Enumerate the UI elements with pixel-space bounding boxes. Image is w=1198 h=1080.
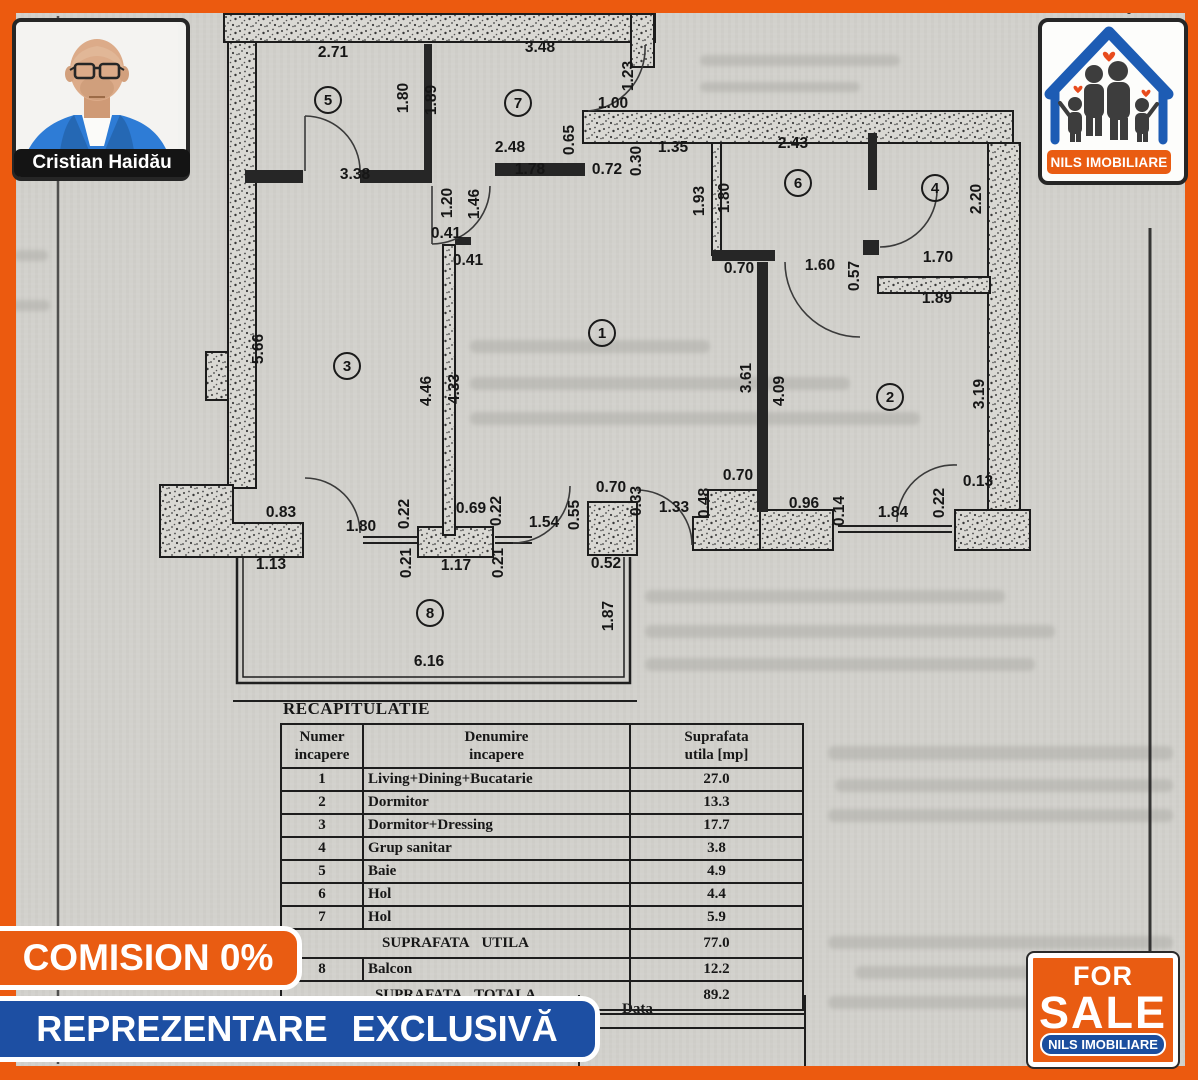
table-row: 4Grup sanitar3.8 xyxy=(281,837,803,860)
recap-header-cell: Suprafatautila [mp] xyxy=(630,724,803,768)
recap-header-cell: Denumireincapere xyxy=(363,724,630,768)
dimension-label: 0.41 xyxy=(431,225,462,242)
dimension-label: 1.84 xyxy=(878,504,909,521)
dimension-label: 3.61 xyxy=(738,363,755,394)
table-row: 2Dormitor13.3 xyxy=(281,791,803,814)
dimension-label: 0.14 xyxy=(831,496,848,527)
dimension-label: 0.72 xyxy=(592,161,622,178)
room-number: 4 xyxy=(931,180,940,197)
commission-banner-text: COMISION 0% xyxy=(23,937,274,979)
dimension-label: 1.60 xyxy=(805,257,835,274)
dimension-label: 1.87 xyxy=(600,601,617,631)
dimension-label: 0.70 xyxy=(724,260,754,277)
recap-header-cell: Numerincapere xyxy=(281,724,363,768)
recap-header-row: NumerincapereDenumireincapereSuprafataut… xyxy=(281,724,803,768)
room-number: 5 xyxy=(324,92,332,109)
dimension-label: 1.46 xyxy=(466,189,483,220)
dimension-label: 0.55 xyxy=(566,500,583,531)
exclusive-banner: REPREZENTARE EXCLUSIVĂ xyxy=(0,996,600,1062)
frame-top xyxy=(0,0,1198,13)
table-row: SUPRAFATA UTILA77.0 xyxy=(281,929,803,958)
dimension-label: 1.80 xyxy=(346,518,376,535)
brand-logo-text: NILS IMOBILIARE xyxy=(1047,150,1171,174)
table-row: 1Living+Dining+Bucatarie27.0 xyxy=(281,768,803,791)
table-row: 7Hol5.9 xyxy=(281,906,803,929)
recap-title: RECAPITULATIE xyxy=(283,699,430,719)
dimension-label: 0.48 xyxy=(696,488,713,519)
room-number: 8 xyxy=(426,605,434,622)
dimension-label: 0.22 xyxy=(488,496,505,526)
for-sale-badge: FOR SALE NILS IMOBILIARE xyxy=(1028,953,1178,1067)
dimension-label: 2.48 xyxy=(495,139,526,156)
table-row: 8Balcon12.2 xyxy=(281,958,803,981)
dimension-label: 1.17 xyxy=(441,557,471,574)
room-number: 6 xyxy=(794,175,802,192)
commission-banner: COMISION 0% xyxy=(0,926,302,990)
dimension-label: 0.52 xyxy=(591,555,621,572)
dimension-label: 2.20 xyxy=(968,184,985,214)
dimension-label: 5.66 xyxy=(250,334,267,365)
hatched-walls xyxy=(160,14,1030,557)
dimension-label: 1.80 xyxy=(716,183,733,213)
room-number: 1 xyxy=(598,325,606,342)
dimension-label: 0.30 xyxy=(628,146,645,176)
exclusive-banner-text: REPREZENTARE EXCLUSIVĂ xyxy=(36,1008,557,1050)
dimension-label: 1.23 xyxy=(620,61,637,92)
dimension-label: 1.93 xyxy=(691,186,708,217)
dimension-label: 0.21 xyxy=(398,548,415,579)
dimension-label: 0.33 xyxy=(628,486,645,517)
dimension-label: 4.09 xyxy=(771,376,788,407)
brand-logo-card: NILS IMOBILIARE xyxy=(1038,18,1188,185)
dimension-label: 0.96 xyxy=(789,495,820,512)
dimension-label: 0.69 xyxy=(456,500,487,517)
dimension-label: 3.19 xyxy=(971,379,988,410)
scanned-flyer-page: 12345678 2.713.481.801.891.231.000.652.4… xyxy=(0,0,1198,1080)
dimension-label: 1.13 xyxy=(256,556,287,573)
dimension-label: 0.22 xyxy=(931,488,948,518)
room-number: 7 xyxy=(514,95,522,112)
dimension-label: 4.46 xyxy=(418,376,435,407)
table-row: 5Baie4.9 xyxy=(281,860,803,883)
agent-name: Cristian Haidău xyxy=(14,149,190,177)
dimension-label: 1.54 xyxy=(529,514,560,531)
dimension-label: 1.89 xyxy=(922,290,953,307)
recap-table: NumerincapereDenumireincapereSuprafataut… xyxy=(280,723,804,1015)
dimension-label: 1.35 xyxy=(658,139,689,156)
dimension-label: 1.00 xyxy=(598,95,628,112)
dimension-label: 2.43 xyxy=(778,135,809,152)
for-sale-main-text: SALE xyxy=(1033,992,1173,1035)
dimension-label: 3.48 xyxy=(525,39,556,56)
agent-photo xyxy=(16,22,178,169)
dimension-label: 3.38 xyxy=(340,166,371,183)
dimension-label: 0.70 xyxy=(723,467,753,484)
table-row: 3Dormitor+Dressing17.7 xyxy=(281,814,803,837)
dimension-label: 0.83 xyxy=(266,504,297,521)
dimension-label: 2.71 xyxy=(318,44,349,61)
dimension-label: 1.78 xyxy=(515,161,546,178)
room-number: 3 xyxy=(343,358,351,375)
dimension-label: 0.65 xyxy=(561,125,578,156)
agent-photo-card: Cristian Haidău xyxy=(12,18,190,181)
dimension-label: 1.70 xyxy=(923,249,953,266)
for-sale-brand-text: NILS IMOBILIARE xyxy=(1040,1033,1166,1056)
dimension-label: 1.89 xyxy=(423,85,440,116)
dimension-label: 0.57 xyxy=(846,261,863,291)
room-number: 2 xyxy=(886,389,894,406)
dimension-label: 6.16 xyxy=(414,653,445,670)
dimension-label: 4.33 xyxy=(446,374,463,405)
dimension-label: 1.20 xyxy=(439,188,456,218)
dimension-label: 1.80 xyxy=(395,83,412,113)
dimension-label: 0.13 xyxy=(963,473,994,490)
dimension-label: 1.33 xyxy=(659,499,690,516)
table-row: 6Hol4.4 xyxy=(281,883,803,906)
dimension-label: 0.22 xyxy=(396,499,413,529)
house-family-icon xyxy=(1042,22,1176,146)
dimension-label: 0.70 xyxy=(596,479,626,496)
frame-bottom xyxy=(0,1066,1198,1080)
dimension-label: 0.41 xyxy=(453,252,484,269)
dimension-label: 0.21 xyxy=(490,548,507,579)
